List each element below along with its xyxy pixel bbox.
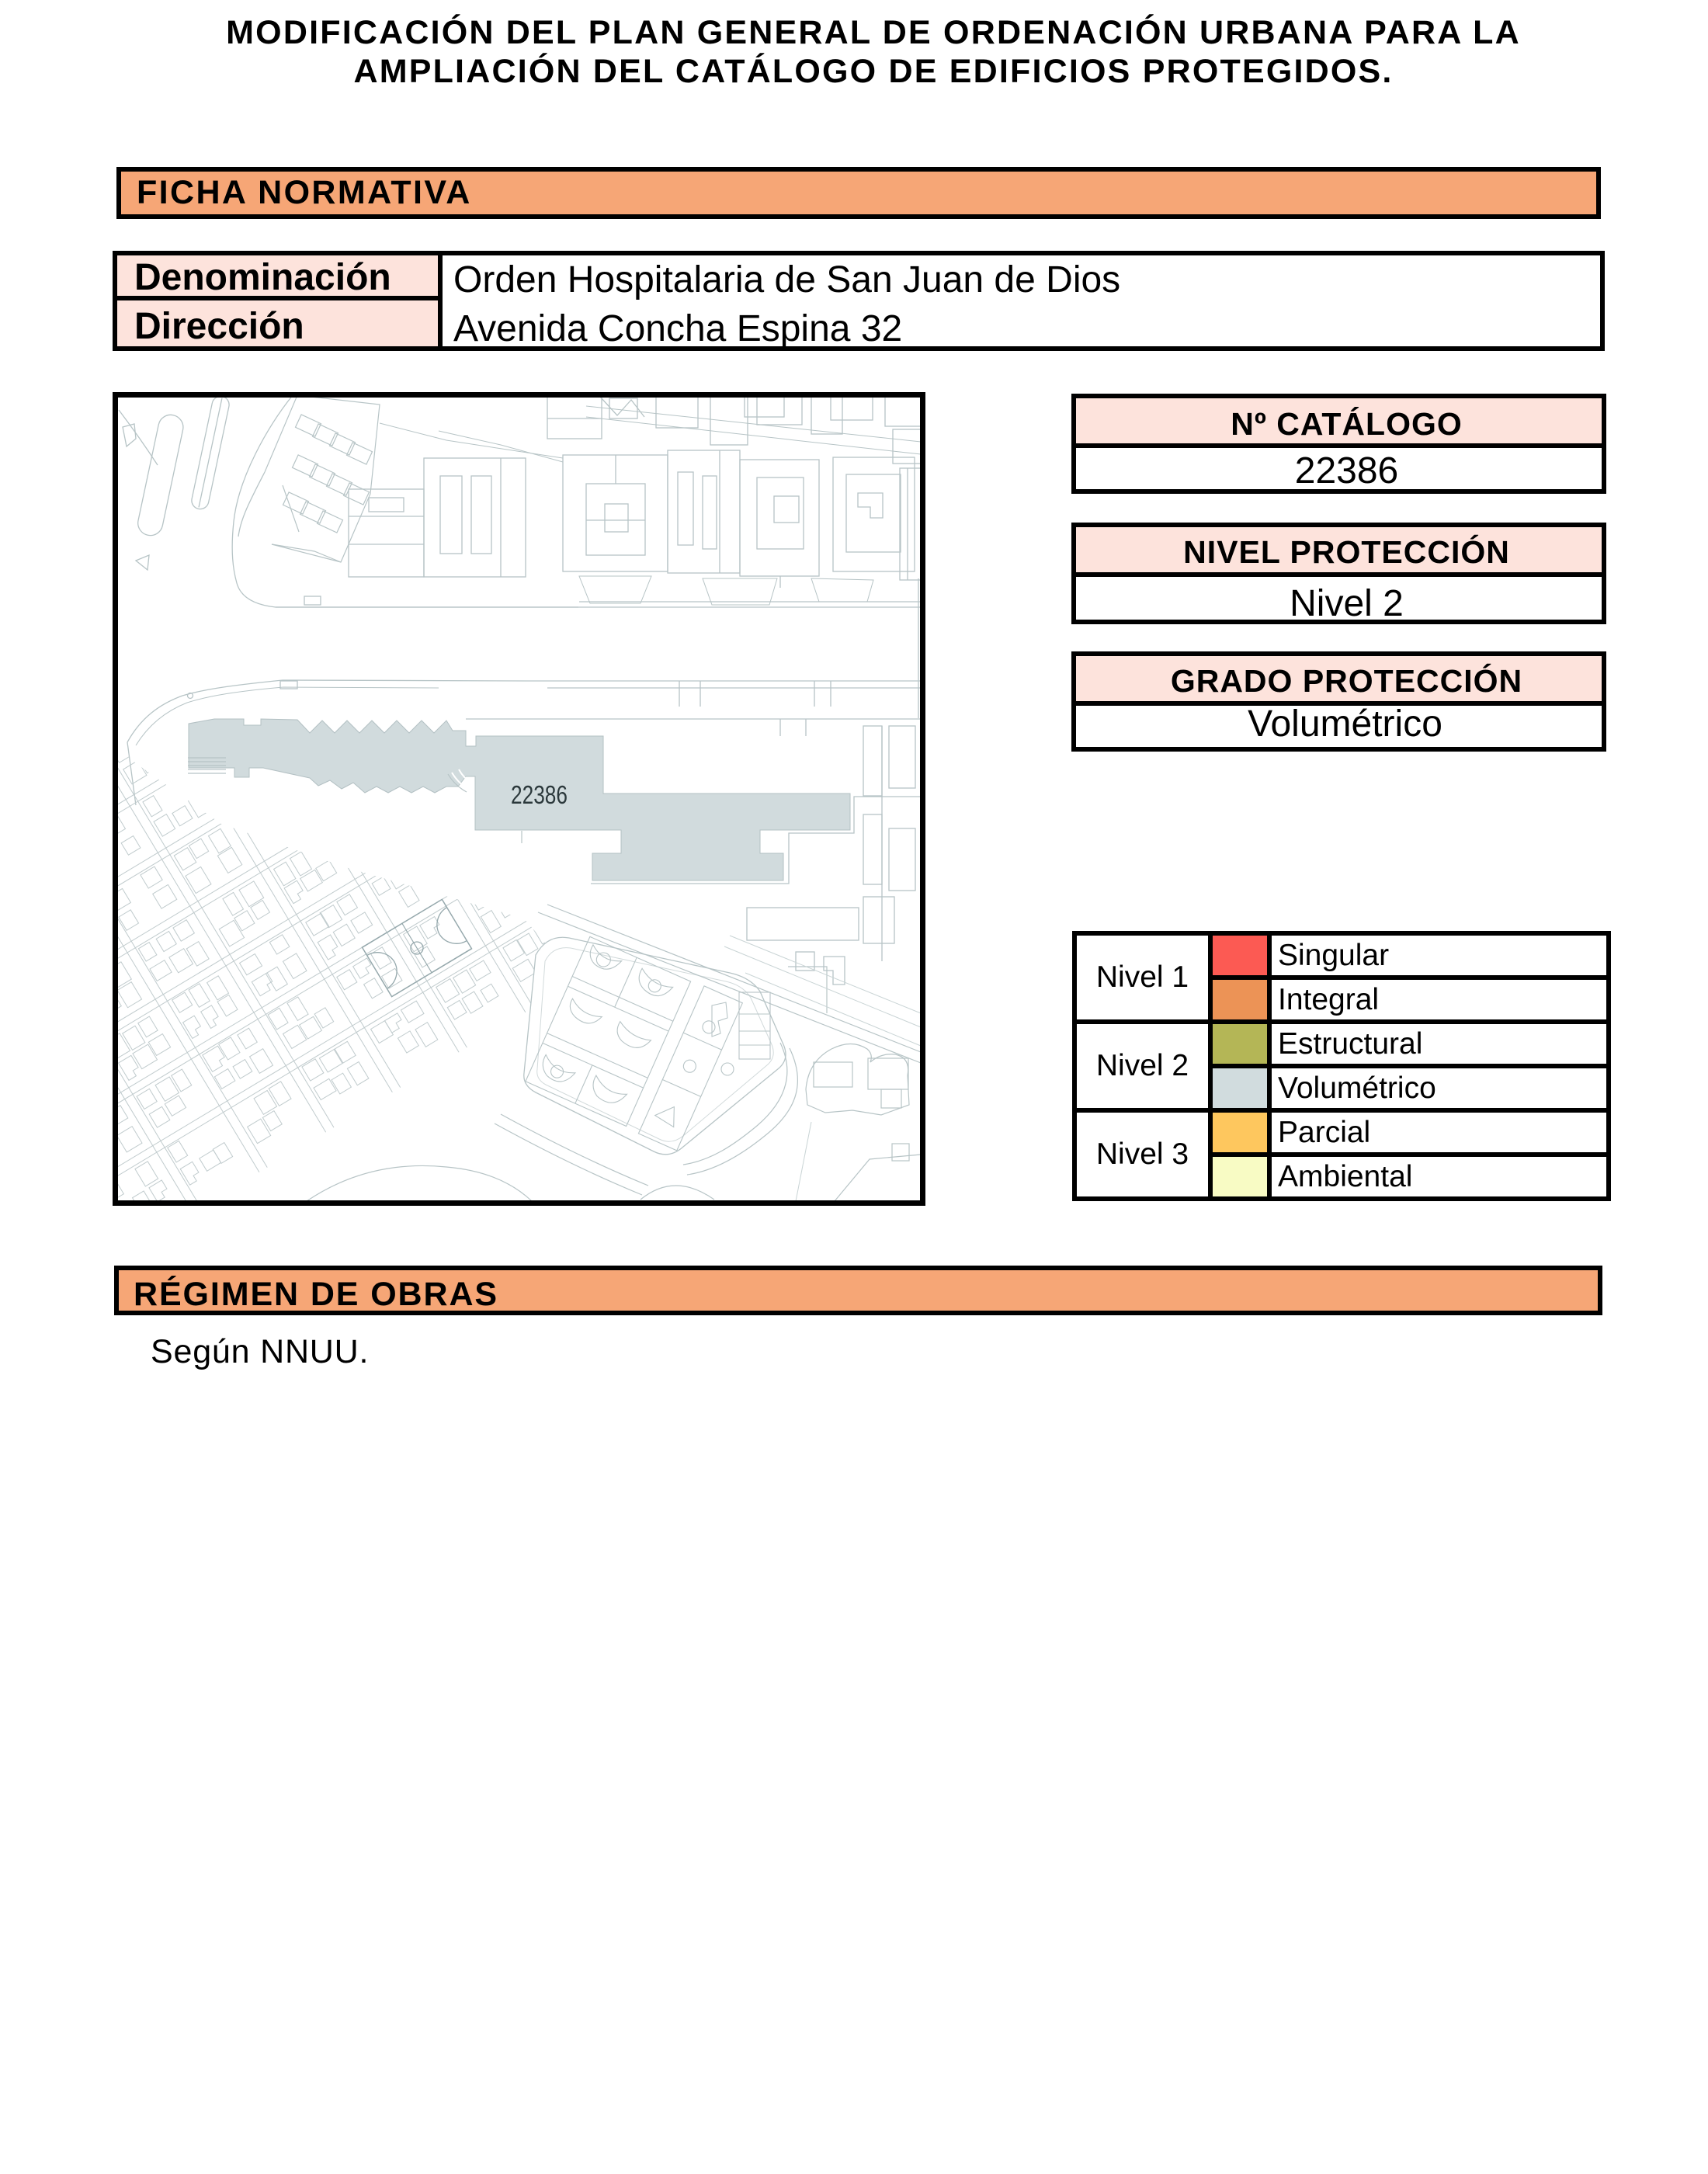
svg-text:22386: 22386 <box>511 780 568 809</box>
